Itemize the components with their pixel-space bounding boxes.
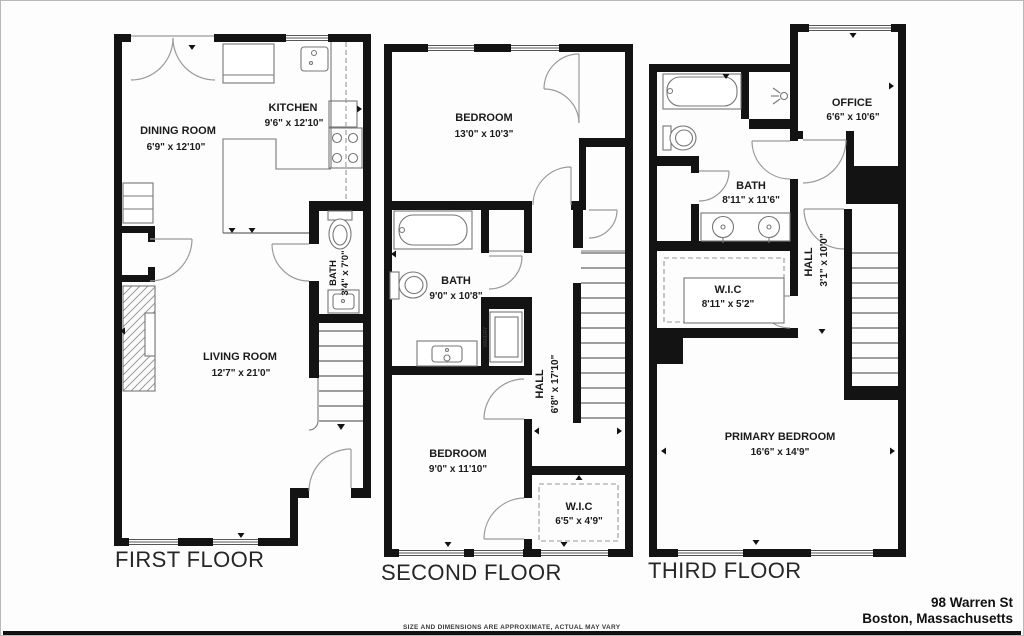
- room-dims-bath2: 9'0" x 10'8": [429, 291, 482, 302]
- second-floor-title: SECOND FLOOR: [381, 560, 562, 586]
- room-label-kitchen: KITCHEN: [269, 102, 318, 114]
- room-label-dining: DINING ROOM: [140, 125, 216, 137]
- room-label-primary: PRIMARY BEDROOM: [725, 431, 836, 443]
- room-label-bath1: BATH: [328, 260, 339, 286]
- address-line2: Boston, Massachusetts: [862, 611, 1013, 627]
- room-label-bedroom2: BEDROOM: [429, 448, 486, 460]
- double-vanity: [701, 213, 790, 243]
- first-floor-title: FIRST FLOOR: [115, 547, 264, 573]
- first-floor-plan: DINING ROOM 6'9" x 12'10" KITCHEN 9'6" x…: [114, 34, 371, 546]
- room-dims-wic3: 8'11" x 5'2": [702, 299, 755, 310]
- second-floor-plan: WM/DRY: [384, 44, 633, 557]
- room-label-living: LIVING ROOM: [203, 351, 277, 363]
- floor-plans-drawing: DINING ROOM 6'9" x 12'10" KITCHEN 9'6" x…: [1, 1, 1024, 636]
- room-dims-living: 12'7" x 21'0": [212, 368, 271, 379]
- first-floor-closet-shelves: [123, 183, 153, 223]
- room-dims-hall3: 3'1" x 10'0": [819, 233, 830, 286]
- room-dims-wic2: 6'5" x 4'9": [555, 516, 603, 527]
- address-line1: 98 Warren St: [862, 595, 1013, 611]
- second-floor-stairs: [581, 251, 625, 418]
- room-label-bath3: BATH: [736, 180, 766, 192]
- room-label-bedroom1: BEDROOM: [455, 112, 512, 124]
- room-label-bath2: BATH: [441, 275, 471, 287]
- fireplace-chimney: [123, 286, 155, 391]
- room-dims-hall2: 6'8" x 17'10": [550, 354, 561, 413]
- bottom-rule: [3, 631, 1021, 635]
- shower-head: [771, 88, 788, 104]
- second-floor-bath-fixtures: [390, 211, 477, 366]
- disclaimer-text: SIZE AND DIMENSIONS ARE APPROXIMATE, ACT…: [403, 624, 620, 631]
- room-dims-kitchen: 9'6" x 12'10": [265, 118, 324, 129]
- room-label-laundry: WM/DRY: [483, 326, 489, 347]
- room-dims-bedroom2: 9'0" x 11'10": [429, 464, 487, 475]
- room-label-wic2: W.I.C: [566, 501, 593, 513]
- property-address: 98 Warren St Boston, Massachusetts: [862, 595, 1013, 627]
- room-dims-office: 6'6" x 10'6": [826, 112, 879, 123]
- room-label-office: OFFICE: [832, 97, 872, 109]
- room-dims-bedroom1: 13'0" x 10'3": [455, 129, 514, 140]
- room-label-hall2: HALL: [534, 369, 546, 399]
- room-dims-bath3: 8'11" x 11'6": [722, 195, 780, 206]
- room-dims-bath1: 3'4" x 7'0": [340, 250, 351, 295]
- room-dims-primary: 16'6" x 14'9": [751, 447, 810, 458]
- room-dims-dining: 6'9" x 12'10": [147, 142, 206, 153]
- first-floor-ticks: [120, 45, 362, 538]
- stairs-down-arrow: [337, 424, 345, 430]
- room-label-hall3: HALL: [803, 247, 815, 277]
- kitchen-cabinet: [223, 44, 274, 83]
- floor-plan-page: DINING ROOM 6'9" x 12'10" KITCHEN 9'6" x…: [0, 0, 1024, 636]
- third-floor-stairs: [852, 253, 898, 373]
- toilet-tank: [390, 272, 399, 299]
- first-floor-labels: DINING ROOM 6'9" x 12'10" KITCHEN 9'6" x…: [140, 102, 351, 379]
- kitchen-appliance: [329, 101, 357, 127]
- third-floor-plan: BATH 8'11" x 11'6" OFFICE 6'6" x 10'6" H…: [649, 24, 906, 557]
- room-label-wic3: W.I.C: [715, 284, 742, 296]
- third-floor-title: THIRD FLOOR: [648, 558, 802, 584]
